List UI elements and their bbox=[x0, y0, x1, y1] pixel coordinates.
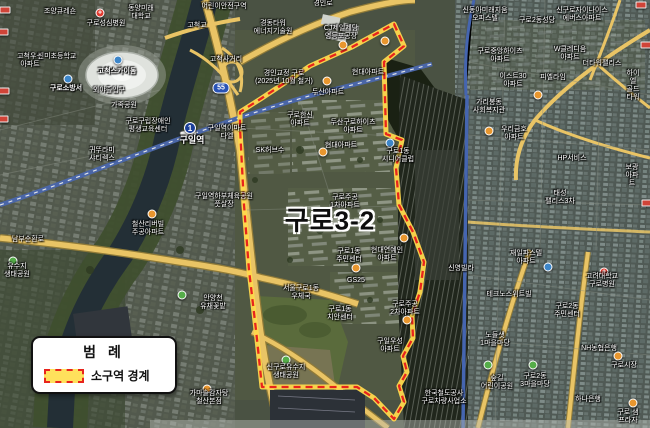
map-viewport[interactable]: ++155 조양큐레숀구로성심병원동양미래 대학교고척우성 아파트신미초등학교고… bbox=[0, 0, 650, 428]
legend-title: 범 례 bbox=[33, 342, 175, 362]
legend: 범 례 소구역 경계 bbox=[31, 336, 177, 394]
boundary-swatch bbox=[44, 369, 84, 383]
district-title: 구로3-2 bbox=[285, 201, 375, 238]
legend-boundary-label: 소구역 경계 bbox=[91, 367, 150, 384]
